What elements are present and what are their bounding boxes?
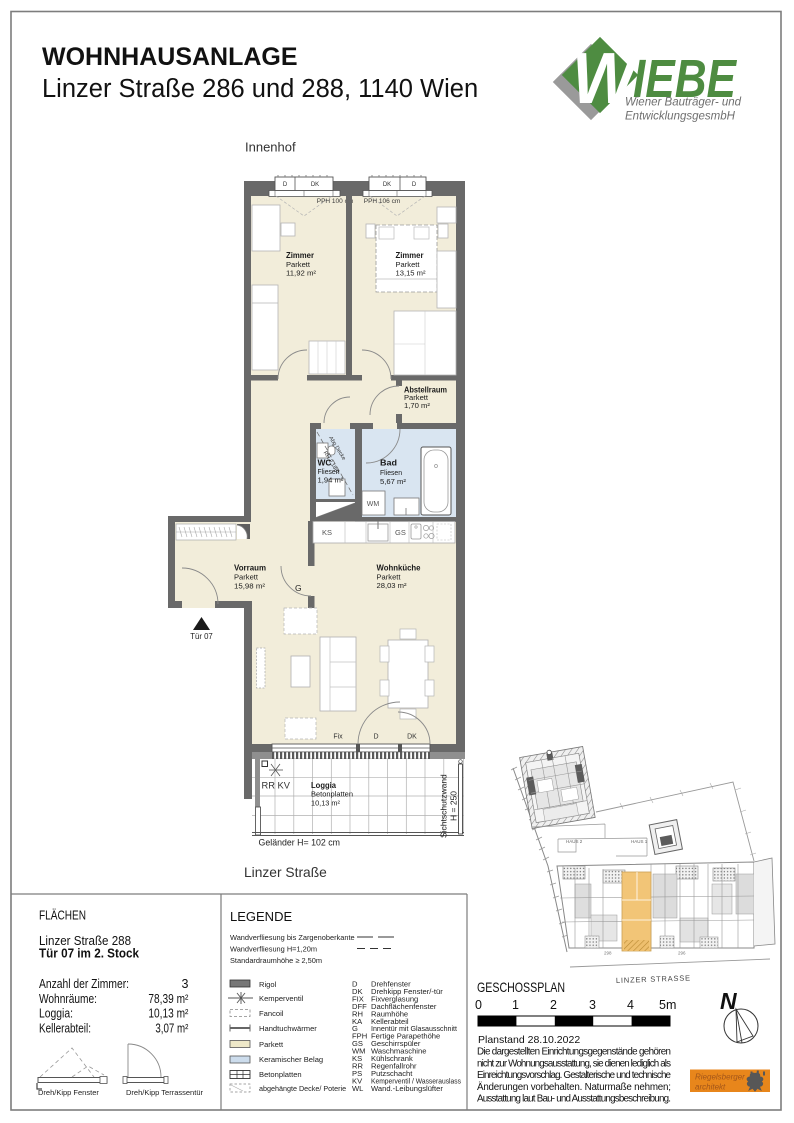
svg-text:FLÄCHEN: FLÄCHEN <box>39 908 86 922</box>
svg-text:Bad: Bad <box>380 459 397 468</box>
svg-text:DK: DK <box>407 734 417 741</box>
svg-text:15,98 m²: 15,98 m² <box>234 582 266 591</box>
svg-text:abgehängte Decke/ Poterie: abgehängte Decke/ Poterie <box>259 1084 346 1093</box>
svg-text:Fliesen: Fliesen <box>380 468 402 477</box>
svg-text:Zimmer: Zimmer <box>286 251 314 260</box>
svg-text:296: 296 <box>678 951 686 956</box>
svg-text:Anzahl der Zimmer:: Anzahl der Zimmer: <box>39 977 129 991</box>
svg-text:G: G <box>295 583 302 593</box>
svg-text:GESCHOSSPLAN: GESCHOSSPLAN <box>477 979 565 995</box>
svg-text:D: D <box>373 734 378 741</box>
svg-text:Handtuchwärmer: Handtuchwärmer <box>259 1024 317 1033</box>
svg-text:Wand.-Leibungslüfter: Wand.-Leibungslüfter <box>371 1084 443 1093</box>
svg-text:Parkett: Parkett <box>259 1040 284 1049</box>
svg-text:Kellerabteil:: Kellerabteil: <box>39 1021 91 1035</box>
svg-text:Linzer Straße 286 und 288, 114: Linzer Straße 286 und 288, 1140 Wien <box>42 75 478 103</box>
svg-text:1,70 m²: 1,70 m² <box>404 401 431 410</box>
svg-text:3: 3 <box>181 977 188 991</box>
svg-text:Dreh/Kipp Terrassentür: Dreh/Kipp Terrassentür <box>126 1088 203 1097</box>
svg-text:Fliesen: Fliesen <box>318 467 340 476</box>
svg-text:Änderungen vorbehalten. Naturm: Änderungen vorbehalten. Naturmaße nehmen… <box>477 1082 671 1093</box>
svg-text:1,94 m²: 1,94 m² <box>318 476 345 485</box>
svg-text:Betonplatten: Betonplatten <box>259 1070 302 1079</box>
svg-text:Rigol: Rigol <box>259 980 277 989</box>
svg-text:WM: WM <box>367 501 380 508</box>
svg-text:5,67 m²: 5,67 m² <box>380 477 407 486</box>
svg-text:Fix: Fix <box>333 734 343 741</box>
svg-text:GS: GS <box>395 528 406 537</box>
svg-text:1: 1 <box>512 998 519 1012</box>
svg-text:Innenhof: Innenhof <box>245 140 296 155</box>
svg-text:Kemperventil: Kemperventil <box>259 994 304 1003</box>
svg-text:nicht zur Wohnungsausstattung,: nicht zur Wohnungsausstattung, sie diene… <box>477 1058 671 1069</box>
svg-text:Planstand 28.10.2022: Planstand 28.10.2022 <box>478 1034 580 1046</box>
svg-text:4: 4 <box>627 998 634 1012</box>
svg-text:architekt: architekt <box>695 1083 726 1092</box>
svg-text:Dreh/Kipp Fenster: Dreh/Kipp Fenster <box>38 1088 99 1097</box>
svg-text:Wiener Bauträger- und: Wiener Bauträger- und <box>625 97 742 109</box>
svg-text:78,39 m²: 78,39 m² <box>148 992 188 1006</box>
svg-text:10,13 m²: 10,13 m² <box>311 798 341 807</box>
svg-text:Vorraum: Vorraum <box>234 563 266 572</box>
svg-text:H = 250: H = 250 <box>449 791 459 821</box>
svg-text:28,03 m²: 28,03 m² <box>377 581 408 590</box>
svg-text:Tür 07 im 2. Stock: Tür 07 im 2. Stock <box>39 946 139 960</box>
svg-text:3: 3 <box>589 998 596 1012</box>
svg-text:11,92 m²: 11,92 m² <box>286 268 317 277</box>
svg-text:Parkett: Parkett <box>234 572 258 581</box>
svg-text:Keramischer Belag: Keramischer Belag <box>259 1055 323 1064</box>
svg-text:Wandverfliesung H=1,20m: Wandverfliesung H=1,20m <box>230 945 317 954</box>
svg-text:Zimmer: Zimmer <box>396 251 424 260</box>
svg-text:298: 298 <box>604 951 612 956</box>
svg-text:Loggia: Loggia <box>311 781 337 790</box>
svg-text:Tür 07: Tür 07 <box>190 632 213 641</box>
svg-text:Riegelsberger: Riegelsberger <box>695 1073 745 1082</box>
svg-text:D: D <box>412 182 417 188</box>
svg-text:Standardraumhöhe ≥ 2,50m: Standardraumhöhe ≥ 2,50m <box>230 956 322 965</box>
svg-text:PPH 106 cm: PPH 106 cm <box>364 198 401 205</box>
svg-text:Sichtschutzwand: Sichtschutzwand <box>439 774 449 838</box>
svg-text:HAUS 2: HAUS 2 <box>566 839 583 844</box>
svg-text:DK: DK <box>383 182 391 188</box>
svg-text:3,07 m²: 3,07 m² <box>155 1021 188 1035</box>
svg-text:Geländer H= 102 cm: Geländer H= 102 cm <box>259 838 340 848</box>
svg-text:2: 2 <box>550 998 557 1012</box>
svg-text:Wohnräume:: Wohnräume: <box>39 992 97 1006</box>
svg-text:KS: KS <box>322 528 332 537</box>
svg-text:EntwicklungsgesmbH: EntwicklungsgesmbH <box>625 111 736 123</box>
svg-text:Ausstattung laut Bau- und Auss: Ausstattung laut Bau- und Ausstattungsbe… <box>477 1094 671 1105</box>
svg-text:Fancoil: Fancoil <box>259 1009 284 1018</box>
svg-text:Linzer Straße: Linzer Straße <box>244 865 327 880</box>
svg-text:D: D <box>283 182 288 188</box>
svg-text:10,13 m²: 10,13 m² <box>148 1007 188 1021</box>
svg-text:Wandverfliesung bis Zargenober: Wandverfliesung bis Zargenoberkante <box>230 933 355 942</box>
svg-text:WOHNHAUSANLAGE: WOHNHAUSANLAGE <box>42 43 298 71</box>
svg-text:LEGENDE: LEGENDE <box>230 909 292 924</box>
svg-text:Wohnküche: Wohnküche <box>377 564 422 573</box>
svg-text:0: 0 <box>475 998 482 1012</box>
svg-text:HAUS 1: HAUS 1 <box>631 839 648 844</box>
svg-text:DK: DK <box>311 182 319 188</box>
svg-text:RR KV: RR KV <box>262 781 291 791</box>
svg-text:13,15 m²: 13,15 m² <box>396 268 427 277</box>
svg-text:Die dargestellten Einrichtungs: Die dargestellten Einrichtungsgegenständ… <box>477 1047 671 1058</box>
svg-text:Einreichtungsvorschlag. Gestal: Einreichtungsvorschlag. Gestalterische u… <box>477 1070 672 1081</box>
svg-text:5m: 5m <box>659 998 676 1012</box>
svg-text:WL: WL <box>352 1084 363 1093</box>
svg-text:Loggia:: Loggia: <box>39 1007 73 1021</box>
